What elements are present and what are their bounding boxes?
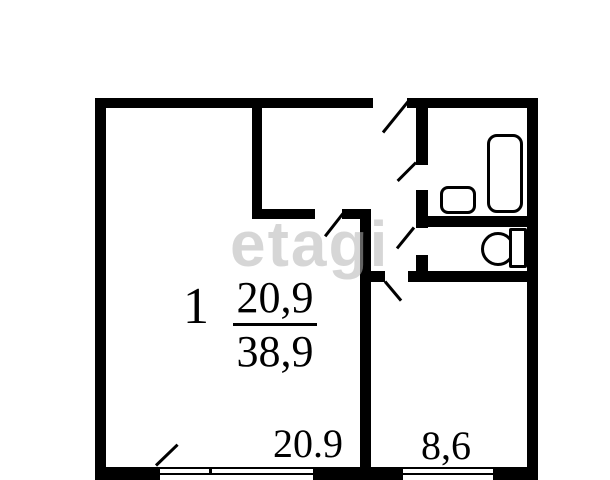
living-room-area-label: 20.9 <box>273 424 343 464</box>
wall-hall-horizontal <box>252 209 315 219</box>
wall-kitchen-top <box>408 271 527 282</box>
kitchen-door-leaf <box>384 281 402 302</box>
wall-bottom-middle <box>313 467 403 480</box>
toilet-tank-icon <box>509 228 527 268</box>
wall-kitchen-door-stub <box>371 271 385 282</box>
window-living-room <box>160 467 313 475</box>
window-kitchen <box>403 467 493 475</box>
wall-bottom-left <box>95 467 160 480</box>
floor-plan: 1 20,9 38,9 20.9 8,6 etagi <box>0 0 610 480</box>
window-mullion <box>209 467 212 475</box>
living-area-value: 20,9 <box>233 276 317 326</box>
toilet-door-leaf <box>396 227 415 250</box>
wall-left <box>95 98 106 480</box>
area-fraction: 20,9 38,9 <box>233 276 317 374</box>
wall-bathroom-left-upper <box>416 108 428 165</box>
wall-bathroom-divider <box>416 216 527 227</box>
wall-right <box>527 98 538 480</box>
wall-bathroom-left-lower <box>416 255 428 271</box>
balcony-door-leaf <box>155 444 179 467</box>
entry-door-leaf <box>382 100 410 133</box>
wall-hall-vertical <box>252 108 262 218</box>
living-room-door-leaf <box>324 213 344 238</box>
wall-room-divider-vertical <box>360 209 371 467</box>
kitchen-area-label: 8,6 <box>421 426 471 466</box>
bathtub-icon <box>487 134 523 213</box>
sink-icon <box>440 186 476 214</box>
wall-bottom-right <box>493 467 538 480</box>
wall-top-main <box>95 98 373 108</box>
bathroom-door-leaf <box>397 161 418 182</box>
wall-top-bathroom <box>407 98 538 108</box>
total-area-value: 38,9 <box>233 326 317 374</box>
apartment-number: 1 <box>183 281 209 333</box>
